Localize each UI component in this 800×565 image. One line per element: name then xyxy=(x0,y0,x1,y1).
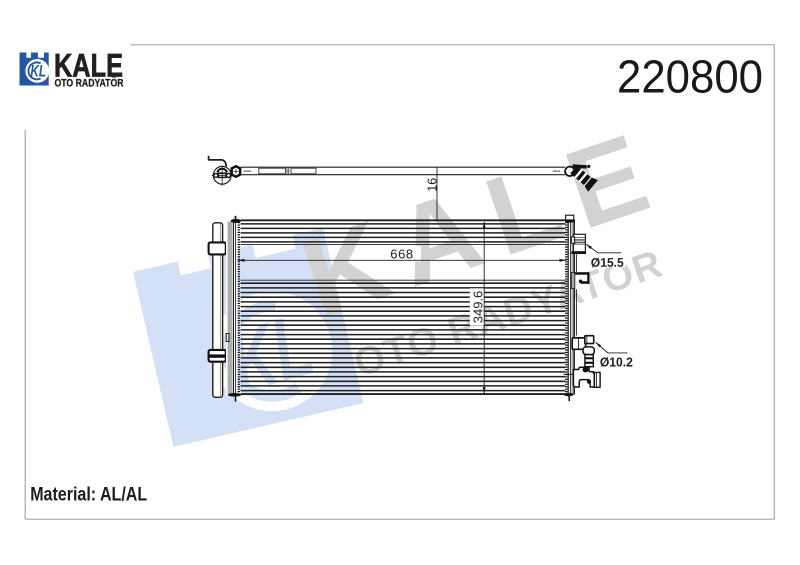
svg-text:668: 668 xyxy=(390,247,414,262)
svg-text:349.6: 349.6 xyxy=(471,291,486,324)
svg-text:220800: 220800 xyxy=(617,51,763,103)
svg-text:Ø15.5: Ø15.5 xyxy=(591,256,624,270)
svg-text:16: 16 xyxy=(425,178,439,192)
svg-text:Material: AL/AL: Material: AL/AL xyxy=(30,483,147,505)
svg-text:Ø10.2: Ø10.2 xyxy=(600,355,633,369)
svg-text:OTO RADYATÖR: OTO RADYATÖR xyxy=(55,76,124,89)
svg-text:KL: KL xyxy=(30,61,46,80)
